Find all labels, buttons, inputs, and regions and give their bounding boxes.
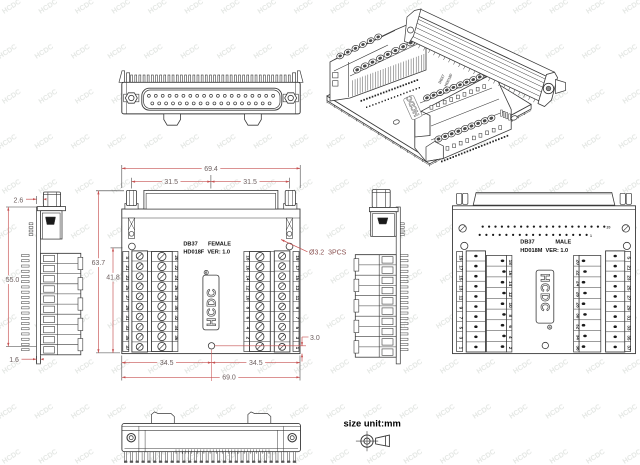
svg-text:32: 32 [174, 315, 179, 321]
svg-text:15: 15 [295, 275, 300, 281]
svg-text:S: S [627, 256, 632, 259]
svg-text:1: 1 [295, 347, 300, 350]
svg-text:28: 28 [174, 295, 179, 301]
svg-text:5: 5 [459, 327, 464, 330]
svg-text:31.5: 31.5 [164, 179, 178, 186]
svg-text:29: 29 [627, 305, 632, 311]
svg-text:33: 33 [125, 325, 130, 331]
svg-text:DB37: DB37 [520, 240, 534, 246]
svg-text:20: 20 [607, 226, 611, 230]
svg-text:HCDC: HCDC [538, 274, 552, 313]
svg-text:S: S [125, 256, 130, 259]
svg-text:13: 13 [295, 285, 300, 291]
svg-text:1: 1 [459, 347, 464, 350]
svg-text:5: 5 [295, 327, 300, 330]
svg-text:1.6: 1.6 [9, 357, 19, 364]
svg-text:41.8: 41.8 [106, 275, 120, 282]
svg-text:7: 7 [295, 317, 300, 320]
svg-text:37: 37 [627, 345, 632, 351]
svg-text:34.5: 34.5 [249, 360, 263, 367]
svg-text:18: 18 [508, 260, 513, 266]
svg-text:3.0: 3.0 [310, 335, 320, 342]
svg-text:DB37: DB37 [183, 242, 197, 248]
svg-text:11: 11 [295, 295, 300, 300]
svg-text:HD018M VER: 1.0: HD018M VER: 1.0 [520, 248, 568, 254]
svg-text:HCDC: HCDC [205, 288, 219, 327]
svg-text:16: 16 [508, 270, 513, 276]
svg-text:14: 14 [508, 281, 513, 287]
svg-text:31: 31 [125, 315, 130, 321]
svg-text:69.0: 69.0 [222, 375, 236, 382]
svg-text:19: 19 [295, 255, 300, 261]
svg-text:4: 4 [508, 336, 513, 339]
svg-text:21: 21 [627, 265, 632, 271]
svg-text:37: 37 [125, 345, 130, 351]
svg-text:35: 35 [627, 335, 632, 341]
svg-text:10: 10 [508, 303, 513, 309]
svg-text:11: 11 [459, 295, 464, 300]
svg-text:31: 31 [627, 315, 632, 321]
svg-text:23: 23 [627, 275, 632, 281]
svg-text:1: 1 [590, 234, 592, 238]
svg-text:MALE: MALE [555, 240, 571, 246]
svg-text:FEMALE: FEMALE [208, 242, 231, 248]
svg-text:size unit:mm: size unit:mm [344, 418, 401, 429]
svg-text:29: 29 [125, 305, 130, 311]
svg-text:26: 26 [174, 285, 179, 291]
svg-text:20: 20 [174, 255, 179, 261]
svg-text:7: 7 [459, 317, 464, 320]
svg-text:9: 9 [295, 307, 300, 310]
svg-text:55.0: 55.0 [6, 277, 20, 284]
svg-text:17: 17 [295, 265, 300, 271]
svg-text:13: 13 [459, 285, 464, 291]
svg-text:27: 27 [627, 295, 632, 301]
svg-text:12: 12 [508, 292, 513, 298]
svg-text:31.5: 31.5 [243, 179, 257, 186]
svg-text:3: 3 [295, 337, 300, 340]
svg-text:24: 24 [174, 275, 179, 281]
svg-text:19: 19 [459, 255, 464, 261]
svg-text:17: 17 [459, 265, 464, 271]
svg-text:22: 22 [174, 265, 179, 271]
svg-text:34.5: 34.5 [160, 360, 174, 367]
svg-text:8: 8 [508, 315, 513, 318]
svg-text:27: 27 [125, 295, 130, 301]
svg-text:69.4: 69.4 [204, 166, 218, 173]
svg-text:23: 23 [125, 275, 130, 281]
svg-text:36: 36 [174, 335, 179, 341]
svg-text:25: 25 [125, 285, 130, 291]
svg-text:3: 3 [459, 337, 464, 340]
svg-text:63.7: 63.7 [92, 260, 106, 267]
svg-text:34: 34 [174, 325, 179, 331]
svg-text:HD018F VER: 1.0: HD018F VER: 1.0 [183, 249, 230, 255]
svg-text:15: 15 [459, 275, 464, 281]
svg-text:6: 6 [508, 325, 513, 328]
svg-text:21: 21 [125, 265, 130, 271]
svg-text:Ø3.2 3PCS: Ø3.2 3PCS [309, 250, 347, 257]
svg-text:2.6: 2.6 [14, 197, 24, 204]
svg-text:9: 9 [459, 307, 464, 310]
svg-text:30: 30 [174, 305, 179, 311]
svg-text:35: 35 [125, 335, 130, 341]
svg-text:33: 33 [627, 325, 632, 331]
svg-text:25: 25 [627, 285, 632, 291]
svg-text:2: 2 [508, 347, 513, 350]
